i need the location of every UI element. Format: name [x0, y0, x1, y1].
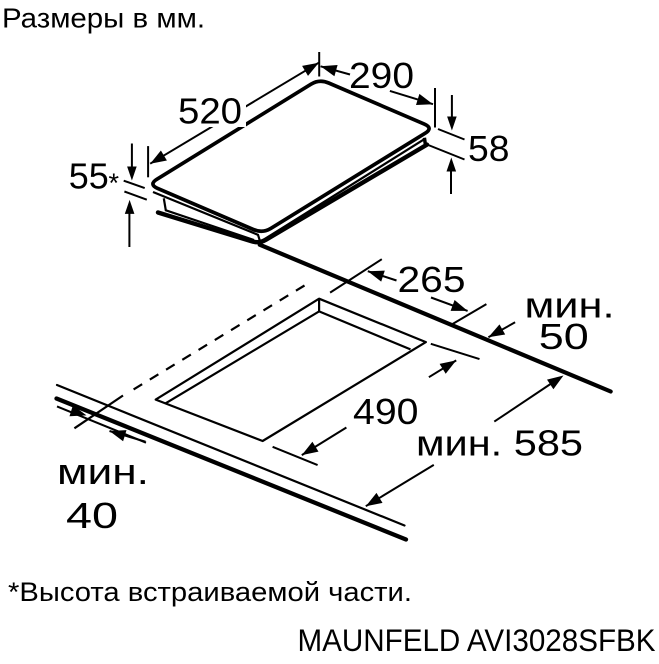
svg-text:Размеры в мм.: Размеры в мм.	[2, 3, 205, 34]
svg-text:*Высота встраиваемой части.: *Высота встраиваемой части.	[8, 577, 412, 607]
svg-text:520: 520	[178, 91, 242, 132]
svg-text:55: 55	[69, 155, 109, 196]
svg-text:265: 265	[398, 259, 466, 300]
svg-text:58: 58	[468, 128, 510, 169]
svg-text:290: 290	[349, 55, 414, 96]
svg-text:мин.: мин.	[57, 451, 149, 492]
svg-text:50: 50	[539, 316, 589, 357]
svg-text:мин. 585: мин. 585	[416, 423, 583, 464]
svg-text:40: 40	[66, 495, 118, 536]
svg-text:*: *	[109, 168, 120, 198]
svg-text:MAUNFELD AVI3028SFBK: MAUNFELD AVI3028SFBK	[298, 623, 656, 658]
svg-text:490: 490	[353, 391, 419, 432]
